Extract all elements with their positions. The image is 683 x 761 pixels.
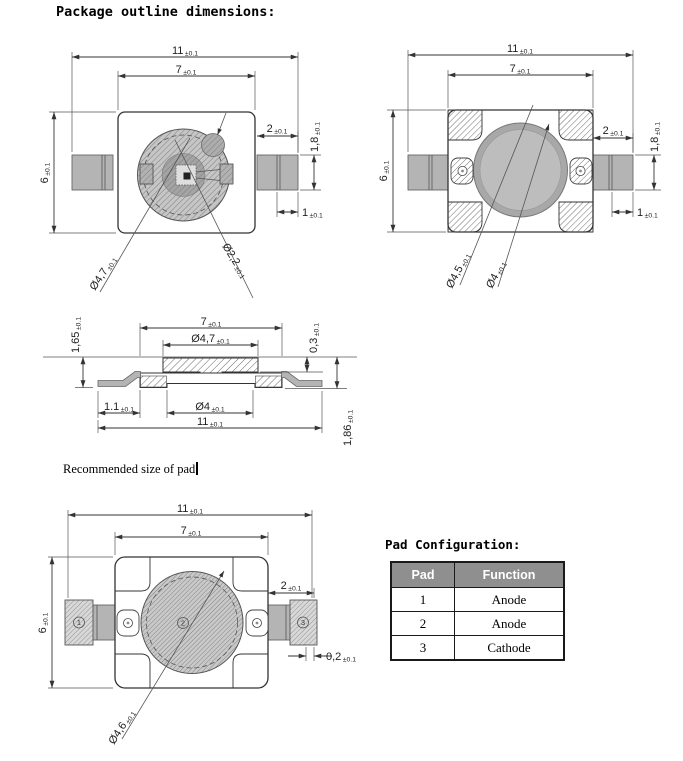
dim-body-width: 7±0.1 bbox=[176, 64, 197, 77]
dim-overall-width: 11±0.1 bbox=[172, 45, 198, 58]
lens-inner-circle bbox=[480, 130, 561, 211]
function-cell: Anode bbox=[455, 612, 565, 636]
dim-body-height: 6±0.1 bbox=[378, 160, 391, 181]
dim-overall-width: 11±0.1 bbox=[507, 43, 533, 56]
pad-configuration-section: Pad Configuration: Pad Function 1 Anode … bbox=[385, 537, 565, 661]
dim-dia-inner: Ø4±0.1 bbox=[484, 259, 509, 291]
lead-right bbox=[268, 605, 293, 640]
pad-note-text: Recommended size of pad bbox=[63, 462, 195, 476]
text-cursor bbox=[196, 462, 198, 475]
pad-number-2: 2 bbox=[181, 619, 185, 628]
pad-number-1: 1 bbox=[77, 618, 81, 627]
dim-height-165: 1,65±0.1 bbox=[70, 317, 83, 353]
table-row: 2 Anode bbox=[391, 612, 564, 636]
dim-lead-tip: 1±0.1 bbox=[302, 207, 323, 220]
pad-cell: 3 bbox=[391, 636, 455, 661]
pad-cell: 2 bbox=[391, 612, 455, 636]
lead-right bbox=[257, 155, 298, 190]
dim-dia-inner: Ø2,2±0.1 bbox=[219, 241, 250, 280]
corner-block bbox=[448, 202, 482, 232]
pad-number-3: 3 bbox=[301, 618, 305, 627]
dim-overall-width: 11±0.1 bbox=[197, 416, 223, 429]
gullwing-lead-right bbox=[282, 372, 323, 387]
leader-arrow bbox=[218, 113, 227, 135]
dim-body-height: 6±0.1 bbox=[39, 162, 52, 183]
gullwing-lead-left bbox=[98, 372, 141, 387]
pad-configuration-title: Pad Configuration: bbox=[385, 537, 565, 552]
pad-note-line[interactable]: Recommended size of pad bbox=[63, 462, 198, 477]
dim-dia-lens: Ø4,7±0.1 bbox=[88, 254, 120, 293]
dim-dia-outer: Ø4,5±0.1 bbox=[444, 251, 473, 291]
drawing-side-view: 1,65±0.1 7±0.1 Ø4,7±0.1 0,3±0.1 1.1±0.1 … bbox=[35, 300, 365, 460]
datasheet-page: { "title": "Package outline dimensions:"… bbox=[0, 0, 683, 761]
corner-block bbox=[448, 110, 482, 140]
function-cell: Cathode bbox=[455, 636, 565, 661]
dim-body-width: 7±0.1 bbox=[201, 316, 222, 329]
dim-lead-length: 2±0.1 bbox=[603, 125, 624, 138]
dim-lead-length: 2±0.1 bbox=[267, 123, 288, 136]
pad-configuration-table: Pad Function 1 Anode 2 Anode 3 Cathode bbox=[390, 561, 565, 661]
dim-dia-4: Ø4±0.1 bbox=[195, 401, 225, 414]
dim-body-width: 7±0.1 bbox=[510, 63, 531, 76]
lens-assembly bbox=[138, 129, 234, 221]
corner-block bbox=[559, 110, 593, 140]
lead-left bbox=[90, 605, 115, 640]
dim-height-186: 1,86±0.1 bbox=[342, 410, 355, 446]
table-header-function: Function bbox=[455, 562, 565, 588]
table-row: 1 Anode bbox=[391, 588, 564, 612]
table-header-pad: Pad bbox=[391, 562, 455, 588]
dim-height-03: 0,3±0.1 bbox=[308, 323, 321, 353]
corner-block bbox=[559, 202, 593, 232]
dim-pad-length: 2±0.1 bbox=[281, 580, 302, 593]
table-row: 3 Cathode bbox=[391, 636, 564, 661]
dim-dia-47: Ø4,7±0.1 bbox=[191, 333, 230, 346]
lead-left bbox=[408, 155, 448, 190]
dim-body-width: 7±0.1 bbox=[181, 525, 202, 538]
base-strip-left bbox=[141, 376, 167, 387]
dim-lead-width: 1,8±0.1 bbox=[309, 122, 322, 152]
dim-lead-tip: 1±0.1 bbox=[637, 207, 658, 220]
pad-cell: 1 bbox=[391, 588, 455, 612]
dim-pad-offset: 0,2±0.1 bbox=[326, 651, 356, 664]
drawing-top-view-plain: 11±0.1 7±0.1 6±0.1 2±0.1 1,8±0.1 1±0.1 Ø… bbox=[365, 40, 683, 305]
page-title: Package outline dimensions: bbox=[56, 4, 275, 20]
dim-overall-width: 11±0.1 bbox=[177, 503, 203, 516]
thermal-pad-circle bbox=[141, 572, 243, 674]
dim-width-11dot1: 1.1±0.1 bbox=[104, 401, 134, 414]
lead-left bbox=[72, 155, 113, 190]
dim-lead-width: 1,8±0.1 bbox=[649, 122, 662, 152]
dim-body-height: 6±0.1 bbox=[37, 612, 50, 633]
drawing-pad-layout: 1 2 3 11±0.1 7±0.1 6±0.1 2±0.1 0,2±0.1 Ø… bbox=[30, 495, 383, 761]
lead-right bbox=[593, 155, 633, 190]
base-strip-right bbox=[256, 376, 282, 387]
function-cell: Anode bbox=[455, 588, 565, 612]
chip-die bbox=[184, 173, 191, 180]
drawing-top-view-hatched: 11±0.1 7±0.1 6±0.1 2±0.1 1,8±0.1 1±0.1 Ø… bbox=[25, 40, 355, 305]
dim-dia-46: Ø4,6±0.1 bbox=[106, 708, 138, 747]
